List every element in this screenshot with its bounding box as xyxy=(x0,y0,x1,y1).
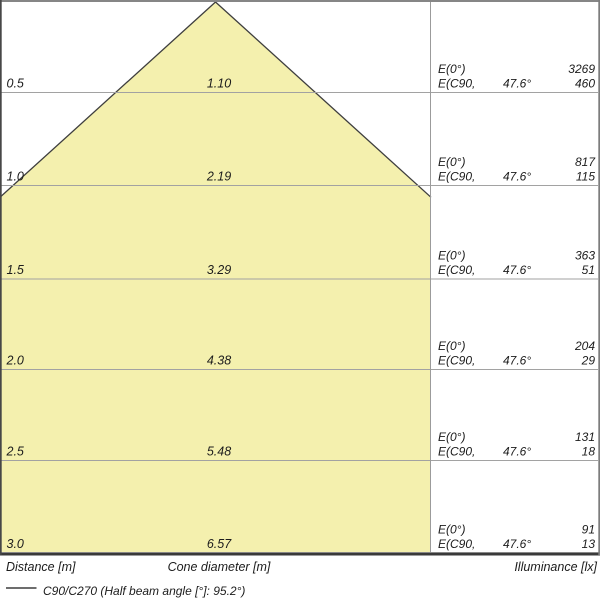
svg-text:6.57: 6.57 xyxy=(207,537,232,551)
svg-text:E(0°): E(0°) xyxy=(438,523,465,537)
svg-text:131: 131 xyxy=(575,430,595,444)
svg-text:E(0°): E(0°) xyxy=(438,430,465,444)
svg-text:1.0: 1.0 xyxy=(7,170,24,184)
svg-text:2.5: 2.5 xyxy=(6,445,24,459)
svg-text:E(C90,: E(C90, xyxy=(438,77,475,91)
svg-text:47.6°: 47.6° xyxy=(503,537,531,551)
svg-text:E(0°): E(0°) xyxy=(438,249,465,263)
svg-text:91: 91 xyxy=(582,523,595,537)
svg-text:1.5: 1.5 xyxy=(7,263,24,277)
svg-text:47.6°: 47.6° xyxy=(503,263,531,277)
svg-text:13: 13 xyxy=(582,537,596,551)
svg-text:E(C90,: E(C90, xyxy=(438,354,475,368)
svg-text:C90/C270 (Half beam angle [°]:: C90/C270 (Half beam angle [°]: 95.2°) xyxy=(43,584,245,598)
svg-text:3269: 3269 xyxy=(568,62,595,76)
svg-text:2.19: 2.19 xyxy=(206,170,231,184)
svg-text:E(0°): E(0°) xyxy=(438,155,465,169)
svg-text:47.6°: 47.6° xyxy=(503,170,531,184)
svg-text:E(C90,: E(C90, xyxy=(438,445,475,459)
svg-text:460: 460 xyxy=(575,77,595,91)
svg-text:47.6°: 47.6° xyxy=(503,77,531,91)
svg-text:363: 363 xyxy=(575,249,595,263)
svg-text:3.0: 3.0 xyxy=(7,537,24,551)
svg-text:115: 115 xyxy=(576,170,595,184)
svg-text:4.38: 4.38 xyxy=(207,354,231,368)
svg-text:29: 29 xyxy=(581,354,596,368)
svg-text:204: 204 xyxy=(574,339,595,353)
svg-text:Distance [m]: Distance [m] xyxy=(6,560,76,574)
svg-text:0.5: 0.5 xyxy=(7,77,24,91)
svg-text:2.0: 2.0 xyxy=(6,354,24,368)
svg-text:E(C90,: E(C90, xyxy=(438,537,475,551)
svg-text:E(C90,: E(C90, xyxy=(438,263,475,277)
svg-text:E(0°): E(0°) xyxy=(438,62,465,76)
svg-text:Cone diameter [m]: Cone diameter [m] xyxy=(168,560,271,574)
svg-text:1.10: 1.10 xyxy=(207,77,231,91)
svg-text:E(0°): E(0°) xyxy=(438,339,465,353)
svg-text:47.6°: 47.6° xyxy=(503,354,531,368)
svg-text:5.48: 5.48 xyxy=(207,445,231,459)
svg-text:E(C90,: E(C90, xyxy=(438,170,475,184)
svg-text:47.6°: 47.6° xyxy=(503,445,531,459)
svg-text:Illuminance [lx]: Illuminance [lx] xyxy=(514,560,597,574)
svg-text:18: 18 xyxy=(582,445,596,459)
svg-text:51: 51 xyxy=(582,263,595,277)
svg-text:817: 817 xyxy=(575,155,596,169)
svg-text:3.29: 3.29 xyxy=(207,263,231,277)
